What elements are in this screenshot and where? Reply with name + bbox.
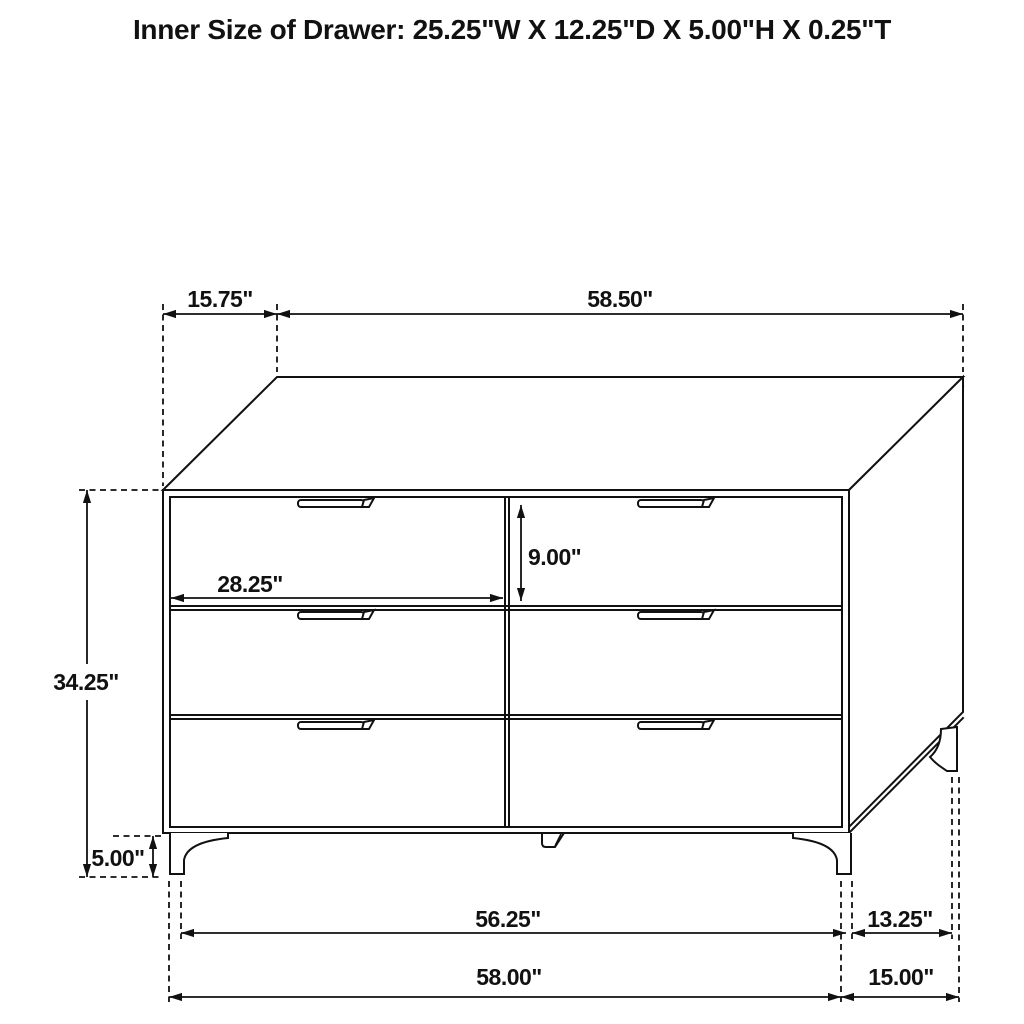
drawer-bottom-left (298, 720, 374, 729)
center-support (542, 833, 564, 847)
drawer-handle-icon (298, 500, 364, 507)
drawer-handle-icon (298, 612, 364, 619)
drawer-bottom-right (638, 720, 714, 729)
drawer-middle-right (638, 610, 714, 619)
drawer-top-left (298, 498, 374, 507)
dim-front-overall-width: 58.00" (169, 964, 841, 997)
dim-top-width: 58.50" (277, 286, 963, 372)
dim-label-drawer-width: 28.25" (217, 571, 282, 597)
front-right-leg (793, 833, 851, 874)
dresser-front-face (163, 490, 849, 833)
dim-front-leg-span: 56.25" (181, 906, 846, 933)
drawer-handle-icon (638, 722, 704, 729)
dim-label-drawer-height: 9.00" (528, 544, 581, 570)
front-left-leg (170, 833, 228, 874)
dim-side-leg-span: 13.25" (852, 906, 952, 933)
drawer-middle-left (298, 610, 374, 619)
dim-label-body-height: 34.25" (53, 669, 118, 695)
dimension-diagram-page: Inner Size of Drawer: 25.25"W X 12.25"D … (0, 0, 1024, 1024)
dim-label-side-overall-depth: 15.00" (868, 964, 933, 990)
drawer-handle-icon (298, 722, 364, 729)
dim-label-side-leg-span: 13.25" (867, 906, 932, 932)
dim-side-overall-depth: 15.00" (841, 964, 959, 997)
dresser-top-face (163, 377, 963, 497)
dim-leg-height: 5.00" (79, 836, 162, 877)
drawer-handle-icon (638, 500, 704, 507)
dim-label-front-overall-width: 58.00" (476, 964, 541, 990)
dim-label-front-leg-span: 56.25" (475, 906, 540, 932)
dresser-dimension-diagram: 15.75" 58.50" 34.25" 5.00" 28.25" 9.00" (0, 0, 1024, 1024)
drawer-top-right (638, 498, 714, 507)
dim-label-top-width: 58.50" (587, 286, 652, 312)
dim-label-top-depth: 15.75" (187, 286, 252, 312)
drawer-handle-icon (638, 612, 704, 619)
dim-label-leg-height: 5.00" (91, 845, 144, 871)
dim-body-height: 34.25" (53, 490, 160, 877)
